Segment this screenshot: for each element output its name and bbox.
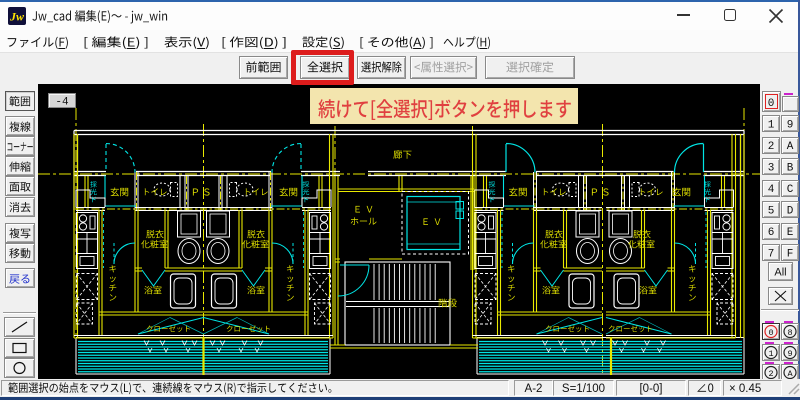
svg-text:S=1/100: S=1/100 <box>562 383 605 395</box>
svg-text:A-2: A-2 <box>525 383 543 395</box>
svg-text:× 0.45: × 0.45 <box>729 383 761 395</box>
svg-text:[0-0]: [0-0] <box>639 383 662 395</box>
